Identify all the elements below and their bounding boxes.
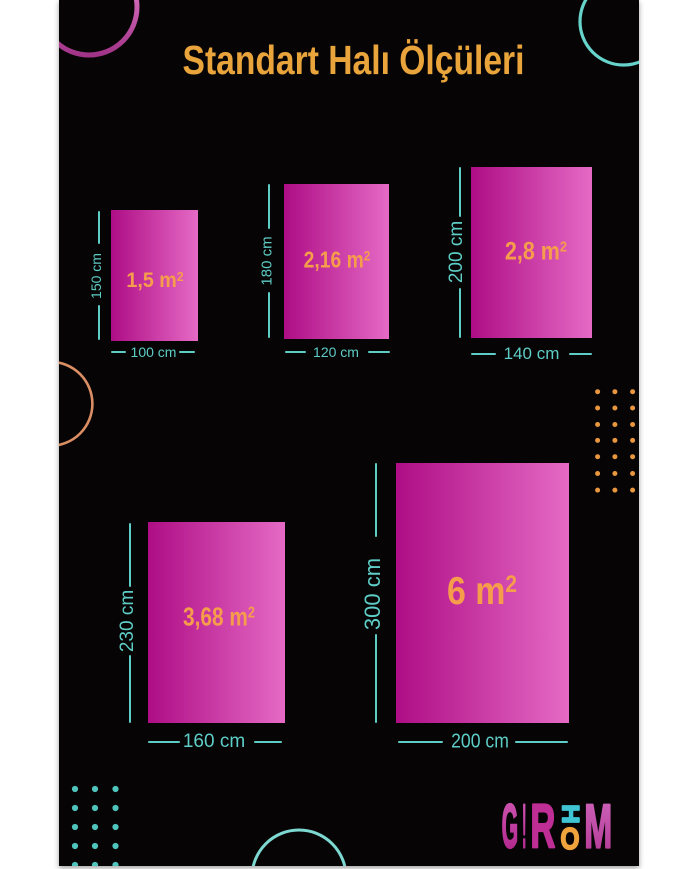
svg-text:M: M	[584, 795, 612, 857]
svg-text:R: R	[530, 795, 555, 857]
svg-text:!: !	[522, 795, 527, 857]
svg-text:G: G	[502, 795, 518, 857]
svg-text:O: O	[561, 821, 580, 856]
